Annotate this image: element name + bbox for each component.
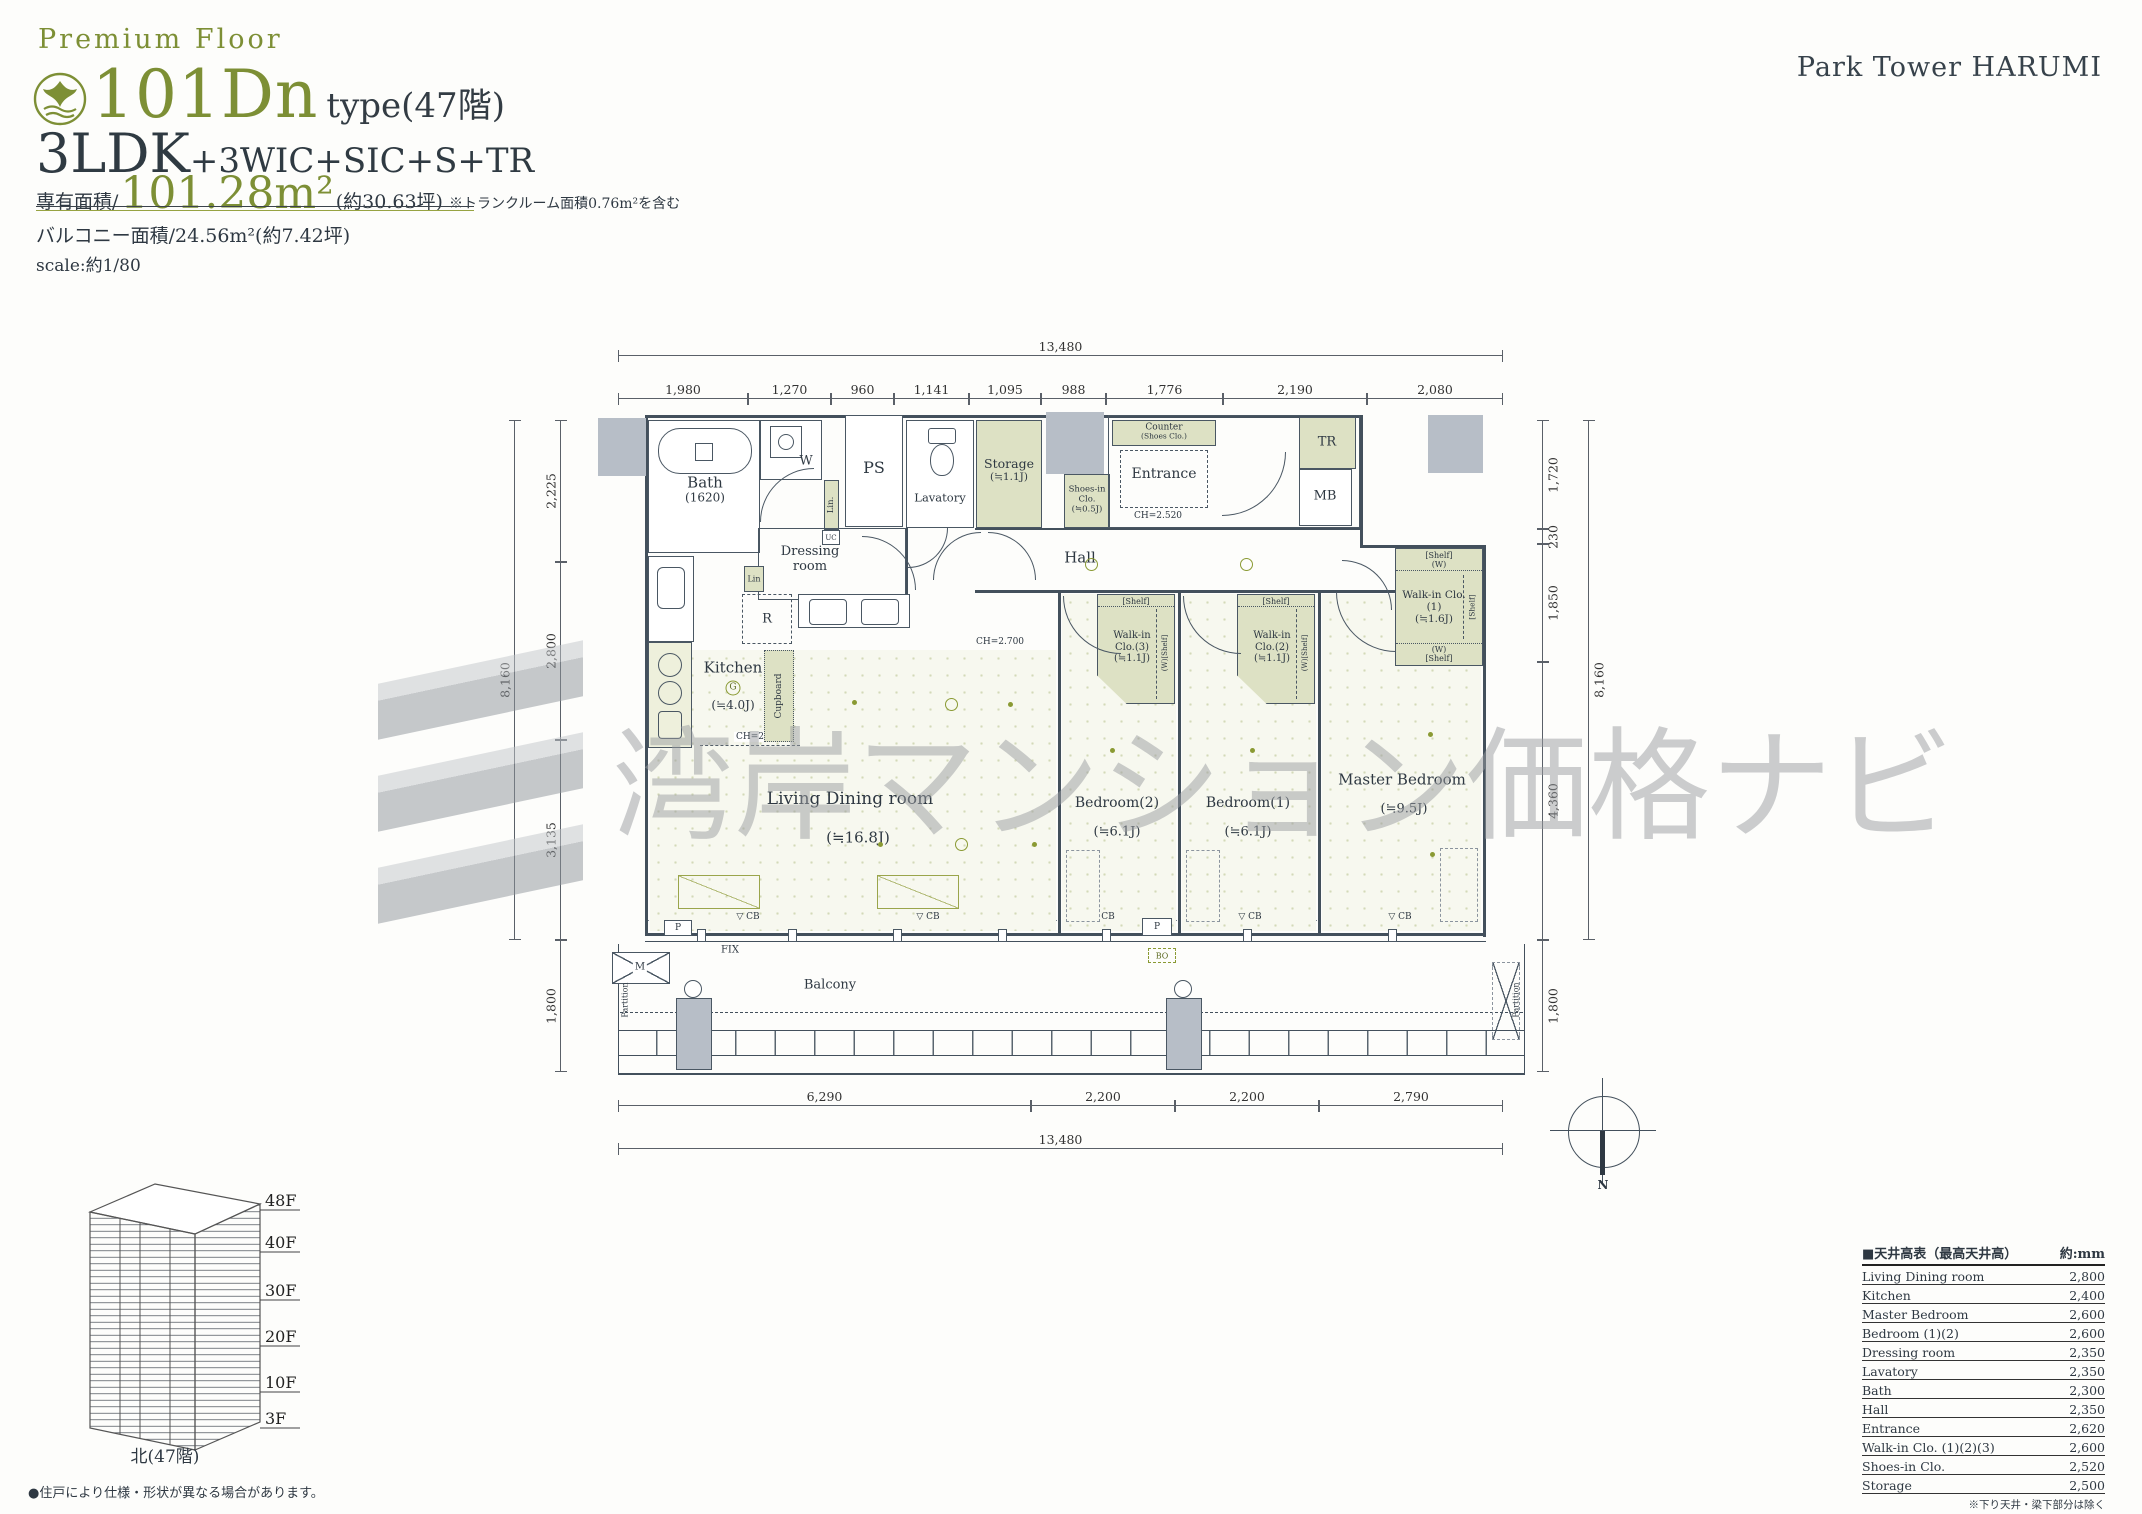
table-row: Dressing room2,350 [1862, 1342, 2105, 1361]
brand-name: Park Tower HARUMI [1797, 52, 2102, 83]
area-note: ※トランクルーム面積0.76m²を含む [449, 193, 680, 213]
floor-mark: 3F [265, 1409, 286, 1428]
dim-bottom-seg: 2,790 [1319, 1105, 1503, 1106]
concrete-column [598, 418, 646, 476]
compass-n-label: N [1598, 1179, 1609, 1193]
cb-marker: CB [1101, 912, 1115, 922]
dim-right-seg: 1,720 [1542, 420, 1543, 529]
p-label: P [675, 923, 681, 933]
counter-label: Counter(Shoes Clo.) [1141, 423, 1187, 442]
dressing-label: Dressingroom [781, 545, 840, 575]
wic1-label: Walk-in Clo.(1)(≒1.6J) [1402, 589, 1466, 625]
table-row: Bedroom (1)(2)2,600 [1862, 1323, 2105, 1342]
fixture-dot [1250, 748, 1255, 753]
floor-mark: 30F [265, 1281, 296, 1300]
kitchen-stove-counter [648, 642, 692, 748]
wall [1360, 415, 1363, 531]
table-row: Bath2,300 [1862, 1380, 2105, 1399]
ceiling-height-table: ■天井高表（最高天井高） 約:mm Living Dining room2,80… [1862, 1243, 2105, 1512]
dim-bottom-seg: 2,200 [1175, 1105, 1319, 1106]
partition-label: Partition [620, 982, 629, 1017]
kitchen-label: Kitchen [704, 659, 763, 676]
table-row: Walk-in Clo. (1)(2)(3)2,600 [1862, 1437, 2105, 1456]
tr-label: TR [1318, 436, 1336, 451]
cb-marker: ▽ CB [736, 912, 759, 922]
kitchen-boundary [700, 745, 800, 746]
dim-top-total: 13,480 [618, 355, 1503, 356]
kitchen-sink-counter [648, 556, 694, 642]
building-elevation: 48F 40F 30F 20F 10F 3F [55, 1150, 355, 1464]
building-note: ●住戸により仕様・形状が異なる場合があります。 [28, 1482, 324, 1501]
table-row: Kitchen2,400 [1862, 1285, 2105, 1304]
entrance-ch-label: CH=2.520 [1134, 511, 1182, 521]
scale-label: scale:約1/80 [36, 251, 141, 276]
window-mullion [788, 929, 797, 942]
fixture-dot [1008, 702, 1013, 707]
furniture-outline [1066, 850, 1100, 922]
ceiling-table-footnote: ※下り天井・梁下部分は除く [1862, 1494, 2105, 1512]
m-label: M [633, 961, 647, 973]
floor-mark: 40F [265, 1233, 296, 1252]
dim-top-seg: 960 [831, 398, 894, 399]
unit-type-suffix: type(47階) [326, 78, 505, 127]
window-mullion [1388, 929, 1397, 942]
bedroom1-label: Bedroom(1) [1206, 795, 1290, 811]
kitchen-g-badge: G [726, 681, 741, 696]
window-mullion [1243, 929, 1252, 942]
bedroom2-size: (≒6.1J) [1094, 826, 1141, 841]
table-row: Shoes-in Clo.2,520 [1862, 1456, 2105, 1475]
dim-left-balcony: 1,800 [560, 940, 561, 1072]
ceiling-table-unit: 約:mm [2060, 1243, 2105, 1262]
table-row: Hall2,350 [1862, 1399, 2105, 1418]
table-row: Master Bedroom2,600 [1862, 1304, 2105, 1323]
bathtub-icon [658, 428, 752, 474]
window-line [645, 941, 1486, 942]
entrance-label: Entrance [1131, 466, 1196, 482]
vanity-counter [798, 594, 910, 628]
toilet-tank-icon [928, 428, 956, 444]
dim-top-seg: 1,980 [618, 398, 748, 399]
fixture-dot [1110, 748, 1115, 753]
bedroom2-label: Bedroom(2) [1075, 795, 1159, 811]
door-arc [1342, 560, 1392, 610]
furniture-outline [1186, 850, 1220, 922]
pillar-cap-icon [684, 980, 702, 998]
dim-bottom-total: 13,480 [618, 1148, 1503, 1149]
fixture-ring [955, 838, 968, 851]
window-mullion [1102, 929, 1111, 942]
floor-mark: 10F [265, 1373, 296, 1392]
table-row: Entrance2,620 [1862, 1418, 2105, 1437]
dim-bottom-seg: 2,200 [1031, 1105, 1175, 1106]
dim-top-seg: 1,776 [1106, 398, 1223, 399]
wall [1318, 590, 1321, 935]
balcony-area-label: バルコニー面積/24.56m²(約7.42坪) [36, 221, 350, 248]
linen-label: Lin. [827, 497, 837, 514]
furniture-outline [1440, 848, 1478, 922]
fixture-dot [878, 842, 883, 847]
master-bedroom-size: (≒9.5J) [1381, 803, 1428, 818]
linen2-label: Lin [747, 574, 760, 583]
dim-right-balcony: 1,800 [1542, 940, 1543, 1072]
balcony-pillar [676, 998, 712, 1070]
toilet-bowl-icon [930, 444, 954, 476]
dim-top-seg: 2,190 [1223, 398, 1367, 399]
wall [1483, 545, 1486, 937]
wall [1178, 590, 1181, 935]
kitchen-size-label: (≒4.0J) [711, 699, 754, 713]
floor-plan-page: Premium Floor 101Dn type(47階) 3LDK +3WIC… [0, 0, 2142, 1514]
concrete-column [1428, 415, 1483, 473]
window-wall [645, 933, 1486, 936]
hatch-box [1492, 962, 1520, 1040]
ps-label: PS [863, 459, 885, 477]
dim-right-seg: 4,360 [1542, 662, 1543, 940]
table-row: Lavatory2,350 [1862, 1361, 2105, 1380]
wic2-label: Walk-inClo.(2)(≒1.1J) [1253, 630, 1290, 665]
dim-top-seg: 988 [1041, 398, 1106, 399]
table-row: Living Dining room2,800 [1862, 1266, 2105, 1285]
floor-mark: 20F [265, 1327, 296, 1346]
rug-outline [678, 875, 760, 909]
dim-left-seg: 2,225 [560, 420, 561, 562]
window-mullion [893, 929, 902, 942]
area-value: 101.28m² [120, 168, 333, 219]
walk-in-closet-1: [Shelf](W) (W)[Shelf] [Shelf] Walk-in Cl… [1395, 548, 1483, 666]
shoes-in-label: Shoes-inClo.(≒0.5J) [1069, 485, 1106, 514]
cupboard-label: Cupboard [774, 673, 784, 718]
balcony-label: Balcony [804, 979, 856, 994]
balcony-railing [618, 1030, 1525, 1056]
dim-left-total: 8,160 [514, 420, 515, 940]
lavatory-label: Lavatory [914, 491, 965, 504]
hall-ch-label: CH=2.700 [976, 637, 1024, 647]
fixture-ring [1240, 558, 1253, 571]
r-label: R [762, 613, 772, 628]
mb-label: MB [1314, 490, 1337, 505]
fixture-dot [852, 700, 857, 705]
fixture-ring [1085, 558, 1098, 571]
fixture-ring [945, 698, 958, 711]
dim-top-seg: 1,141 [894, 398, 969, 399]
building-caption: 北(47階) [131, 1448, 200, 1468]
ldk-label: Living Dining room [767, 790, 933, 810]
watermark-logo [378, 652, 608, 972]
master-bedroom-label: Master Bedroom [1338, 771, 1466, 788]
fixture-dot [1430, 852, 1435, 857]
table-row: Storage2,500 [1862, 1475, 2105, 1494]
window-mullion [697, 929, 706, 942]
fixture-dot [1428, 732, 1433, 737]
balcony-pillar [1166, 998, 1202, 1070]
dim-top-seg: 1,095 [969, 398, 1041, 399]
bath-label: Bath(1620) [685, 474, 725, 505]
bedroom1-size: (≒6.1J) [1225, 826, 1272, 841]
dim-right-seg: 230 [1542, 529, 1543, 544]
rug-outline [877, 875, 959, 909]
dim-left-seg: 3,135 [560, 740, 561, 940]
compass-needle [1600, 1131, 1605, 1175]
cb-marker: ▽ CB [1388, 912, 1411, 922]
wall [1058, 590, 1061, 935]
window-mullion [998, 929, 1007, 942]
storage-label: Storage(≒1.1J) [984, 457, 1034, 483]
wall [975, 528, 1363, 530]
header-divider [36, 206, 474, 211]
dim-right-total: 8,160 [1588, 420, 1589, 940]
dim-left-seg: 2,800 [560, 562, 561, 740]
fixture-dot [1032, 842, 1037, 847]
cb-marker: ▽ CB [1238, 912, 1261, 922]
p-label: P [1154, 922, 1160, 932]
ceiling-table-title: ■天井高表（最高天井高） [1862, 1243, 2017, 1262]
cb-marker: ▽ CB [916, 912, 939, 922]
premium-floor-label: Premium Floor [38, 24, 283, 55]
dim-top-seg: 1,270 [748, 398, 831, 399]
door-arc [988, 532, 1036, 580]
balcony-dash-line [620, 1012, 1523, 1013]
washer-icon [770, 426, 802, 458]
dim-bottom-seg: 6,290 [618, 1105, 1031, 1106]
floor-mark: 48F [265, 1191, 296, 1210]
concrete-column [1046, 412, 1104, 474]
pillar-cap-icon [1174, 980, 1192, 998]
uc-label: UC [825, 534, 836, 542]
wall [1360, 518, 1363, 548]
dim-top-seg: 2,080 [1367, 398, 1503, 399]
dim-right-seg: 1,850 [1542, 544, 1543, 662]
